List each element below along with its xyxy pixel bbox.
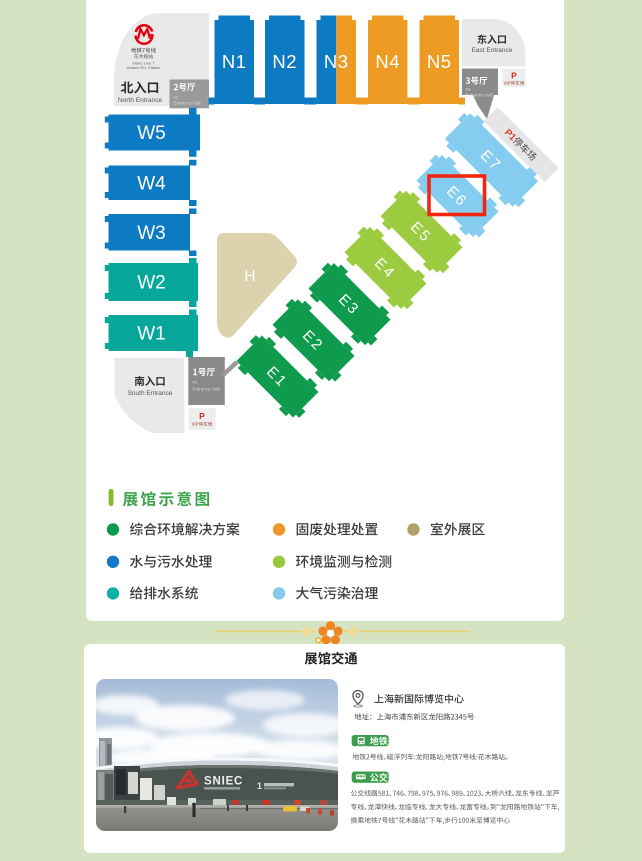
svg-text:W3: W3 <box>137 223 166 244</box>
svg-text:1: 1 <box>257 781 262 791</box>
svg-text:East Entrance: East Entrance <box>472 47 513 54</box>
svg-text:N2: N2 <box>272 51 297 72</box>
svg-text:P: P <box>511 70 517 80</box>
svg-text:#2: #2 <box>174 95 180 100</box>
svg-text:N1: N1 <box>222 51 247 72</box>
svg-text:South Entrance: South Entrance <box>128 390 173 397</box>
svg-text:W4: W4 <box>137 173 166 194</box>
svg-text:W5: W5 <box>137 123 166 144</box>
svg-text:#3: #3 <box>466 87 472 92</box>
svg-text:SNIEC: SNIEC <box>204 776 243 788</box>
svg-text:N5: N5 <box>427 51 452 72</box>
svg-text:P: P <box>199 411 205 421</box>
svg-text:W2: W2 <box>137 273 166 294</box>
svg-text:N3: N3 <box>324 51 349 72</box>
svg-text:Huamu Rd. Station: Huamu Rd. Station <box>127 65 161 70</box>
svg-text:N4: N4 <box>375 51 400 72</box>
svg-text:H: H <box>244 268 255 285</box>
svg-text:Entrance Hall: Entrance Hall <box>466 92 493 97</box>
svg-text:#1: #1 <box>193 380 199 385</box>
svg-text:W1: W1 <box>137 324 166 345</box>
svg-text:Entrance Hall: Entrance Hall <box>193 387 220 392</box>
svg-text:North Entrance: North Entrance <box>118 97 163 104</box>
svg-text:Entrance Hall: Entrance Hall <box>174 101 201 106</box>
